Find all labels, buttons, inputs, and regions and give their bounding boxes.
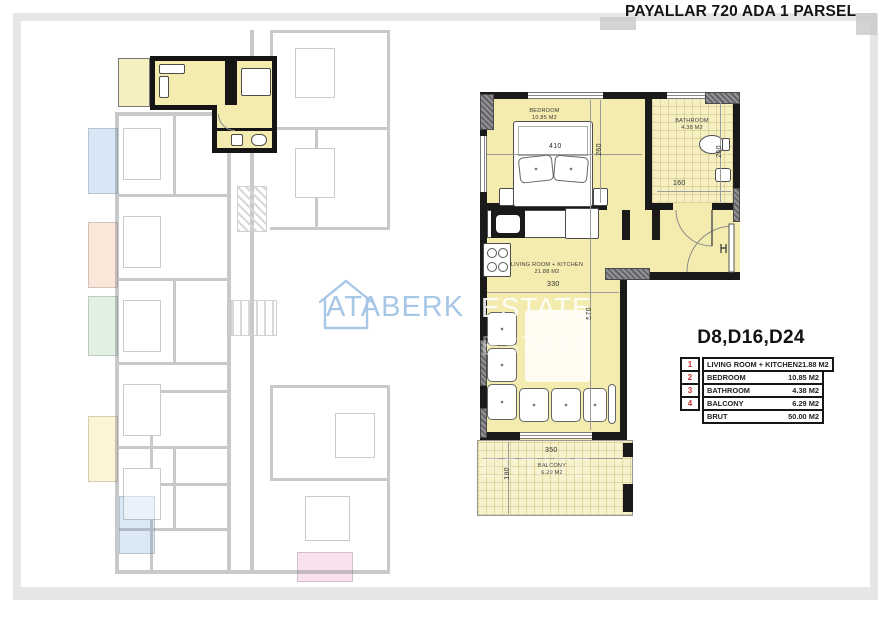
sofa-cushion: [583, 388, 607, 422]
bathroom-label: BATHROOM 4.38 M2: [657, 118, 727, 133]
sofa-cushion: [551, 388, 581, 422]
pillow: [518, 154, 555, 183]
row-value: 4.38 M2: [792, 386, 819, 395]
dim-bathroom-height: 260: [716, 145, 723, 158]
bathroom-name: BATHROOM: [657, 118, 727, 125]
unit-balcony: [118, 58, 150, 107]
watermark-brand-secondary: ESTATE: [481, 330, 592, 362]
row-label: BATHROOM: [707, 386, 750, 395]
unit-sofa: [159, 76, 169, 98]
bedroom-area: 10.85 M2: [497, 115, 592, 122]
dim-bedroom-width: 410: [549, 143, 562, 150]
sofa-cushion: [519, 388, 549, 422]
living-room-name: LIVING ROOM + KITCHEN: [487, 262, 607, 269]
kitchen-sink: [496, 215, 520, 233]
row-value: 50.00 M2: [788, 412, 819, 421]
living-room-area: 21.88 M2: [487, 269, 607, 276]
page-title: PAYALLAR 720 ADA 1 PARSEL: [625, 3, 847, 21]
sofa-armrest: [608, 384, 616, 424]
row-value: 10.85 M2: [788, 373, 819, 382]
row-label: BALCONY: [707, 399, 744, 408]
toilet-tank: [722, 138, 730, 151]
row-label: BRUT: [707, 412, 728, 421]
faded-wall-fragment: [856, 13, 877, 35]
watermark-brand-secondary: ESTATE: [481, 292, 592, 324]
dim-bedroom-height: 260: [596, 143, 603, 156]
floorplan-page: { "page": { "title": "PAYALLAR 720 ADA 1…: [0, 0, 891, 630]
bedroom-label: BEDROOM 10.85 M2: [497, 108, 592, 123]
row-label: BEDROOM: [707, 373, 746, 382]
unit-sofa: [159, 64, 185, 74]
area-table: 1 LIVING ROOM + KITCHEN21.88 M2 2 BEDROO…: [680, 357, 824, 424]
dim-living-width: 330: [547, 281, 560, 288]
kitchen-appliance: [565, 208, 599, 239]
unit-label: D8,D16,D24: [678, 327, 824, 349]
unit-toilet: [251, 134, 267, 146]
row-label: LIVING ROOM + KITCHEN: [707, 360, 798, 369]
watermark-brand: ATABERK: [326, 291, 464, 324]
bathroom-area: 4.38 M2: [657, 125, 727, 132]
living-room-label: LIVING ROOM + KITCHEN 21.88 M2: [487, 262, 607, 277]
bathroom-sink: [715, 168, 731, 182]
row-number: 4: [680, 396, 700, 411]
row-value: 21.88 M2: [798, 360, 829, 369]
row-value: 6.29 M2: [792, 399, 819, 408]
bedroom-name: BEDROOM: [497, 108, 592, 115]
unit-kitchen-counter: [225, 61, 237, 105]
sofa-cushion: [487, 384, 517, 420]
unit-sink: [231, 134, 243, 146]
nightstand: [499, 188, 514, 206]
table-row-total: BRUT50.00 M2: [680, 409, 824, 424]
unit-bed: [241, 68, 271, 96]
pillow: [553, 155, 589, 184]
bed-blanket: [518, 126, 588, 156]
dim-bathroom-width: 160: [673, 180, 686, 187]
watermark-brand-secondary: ESTATE: [481, 452, 592, 484]
